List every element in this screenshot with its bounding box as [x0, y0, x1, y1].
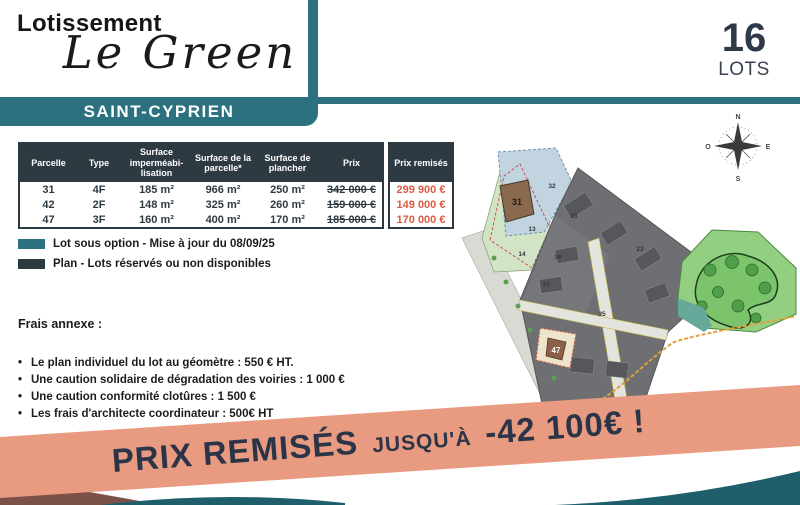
cell-surface-parcelle: 966 m² [192, 182, 254, 197]
lots-block: 16 LOTS [718, 18, 770, 81]
price-table-main: Parcelle Type Surface imperméabi-lisatio… [18, 142, 384, 229]
cell-surface-imp: 148 m² [121, 197, 192, 212]
col-header-surface-parcelle: Surface de la parcelle* [192, 144, 254, 182]
option-color-swatch [18, 239, 45, 249]
estate-name: Le Green [55, 26, 305, 79]
legend: Lot sous option - Mise à jour du 08/09/2… [18, 238, 275, 278]
lots-label: LOTS [718, 59, 770, 81]
cell-prix: 159 000 € [321, 197, 382, 212]
col-header-surface-plancher: Surface de plancher [254, 144, 321, 182]
col-header-type: Type [77, 144, 121, 182]
compass-north-label: N [735, 114, 740, 121]
teal-wave-right [555, 471, 800, 505]
legend-item-reserved: Plan - Lots réservés ou non disponibles [18, 258, 275, 270]
cell-type: 2F [77, 197, 121, 212]
cell-parcelle: 42 [20, 197, 77, 212]
map-lot47-label: 47 [552, 346, 561, 355]
cell-type: 4F [77, 182, 121, 197]
svg-text:14: 14 [518, 251, 526, 258]
cell-prix: 185 000 € [321, 212, 382, 227]
flyer-page: Lotissement Le Green SAINT-CYPRIEN 16 LO… [0, 0, 800, 505]
fees-title: Frais annexe : [18, 317, 448, 331]
promo-middle: JUSQU'À [371, 427, 472, 458]
cell-surface-plancher: 250 m² [254, 182, 321, 197]
reserved-color-swatch [18, 259, 45, 269]
legend-reserved-label: Plan - Lots réservés ou non disponibles [53, 258, 271, 270]
city-name: SAINT-CYPRIEN [84, 102, 235, 122]
compass-east-label: E [766, 144, 771, 151]
svg-text:13: 13 [528, 226, 536, 233]
cell-type: 3F [77, 212, 121, 227]
header-vertical-bar [308, 0, 318, 103]
cell-surface-imp: 160 m² [121, 212, 192, 227]
cell-surface-plancher: 170 m² [254, 212, 321, 227]
legend-option-label: Lot sous option - Mise à jour du 08/09/2… [53, 238, 275, 250]
header-rule [314, 97, 800, 104]
cell-prix-remise: 170 000 € [390, 212, 452, 227]
price-table-remise-column: Prix remisés 299 900 € 149 000 € 170 000… [388, 142, 454, 229]
svg-text:23: 23 [636, 246, 644, 253]
col-header-prix: Prix [321, 144, 382, 182]
cell-prix: 342 000 € [321, 182, 382, 197]
cell-surface-parcelle: 325 m² [192, 197, 254, 212]
svg-text:33: 33 [570, 213, 578, 220]
compass-south-label: S [736, 176, 741, 183]
col-header-surface-imp: Surface imperméabi-lisation [121, 144, 192, 182]
svg-text:32: 32 [548, 183, 556, 190]
cell-surface-parcelle: 400 m² [192, 212, 254, 227]
col-header-prix-remises: Prix remisés [390, 144, 452, 182]
cell-prix-remise: 299 900 € [390, 182, 452, 197]
cell-parcelle: 47 [20, 212, 77, 227]
compass-west-label: O [705, 144, 711, 151]
svg-text:35: 35 [598, 311, 606, 318]
cell-surface-imp: 185 m² [121, 182, 192, 197]
svg-text:36: 36 [554, 254, 562, 261]
map-lot31-label: 31 [512, 197, 522, 207]
compass-rose-icon: N S E O [705, 114, 770, 183]
cell-surface-plancher: 260 m² [254, 197, 321, 212]
lots-count: 16 [718, 18, 770, 58]
legend-item-option: Lot sous option - Mise à jour du 08/09/2… [18, 238, 275, 250]
cell-parcelle: 31 [20, 182, 77, 197]
col-header-parcelle: Parcelle [20, 144, 77, 182]
svg-text:15: 15 [542, 281, 550, 288]
price-table: Parcelle Type Surface imperméabi-lisatio… [18, 142, 454, 229]
cell-prix-remise: 149 000 € [390, 197, 452, 212]
city-banner: SAINT-CYPRIEN [0, 97, 318, 126]
